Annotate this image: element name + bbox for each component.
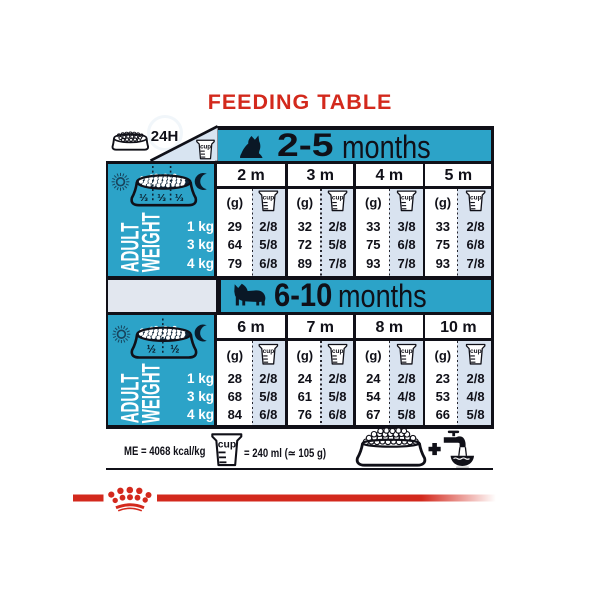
svg-text:⅓: ⅓	[139, 192, 148, 204]
svg-text:½: ½	[147, 344, 156, 356]
svg-text:⅓: ⅓	[157, 192, 166, 204]
svg-text:⅓: ⅓	[175, 192, 184, 204]
svg-text:½: ½	[170, 344, 179, 356]
